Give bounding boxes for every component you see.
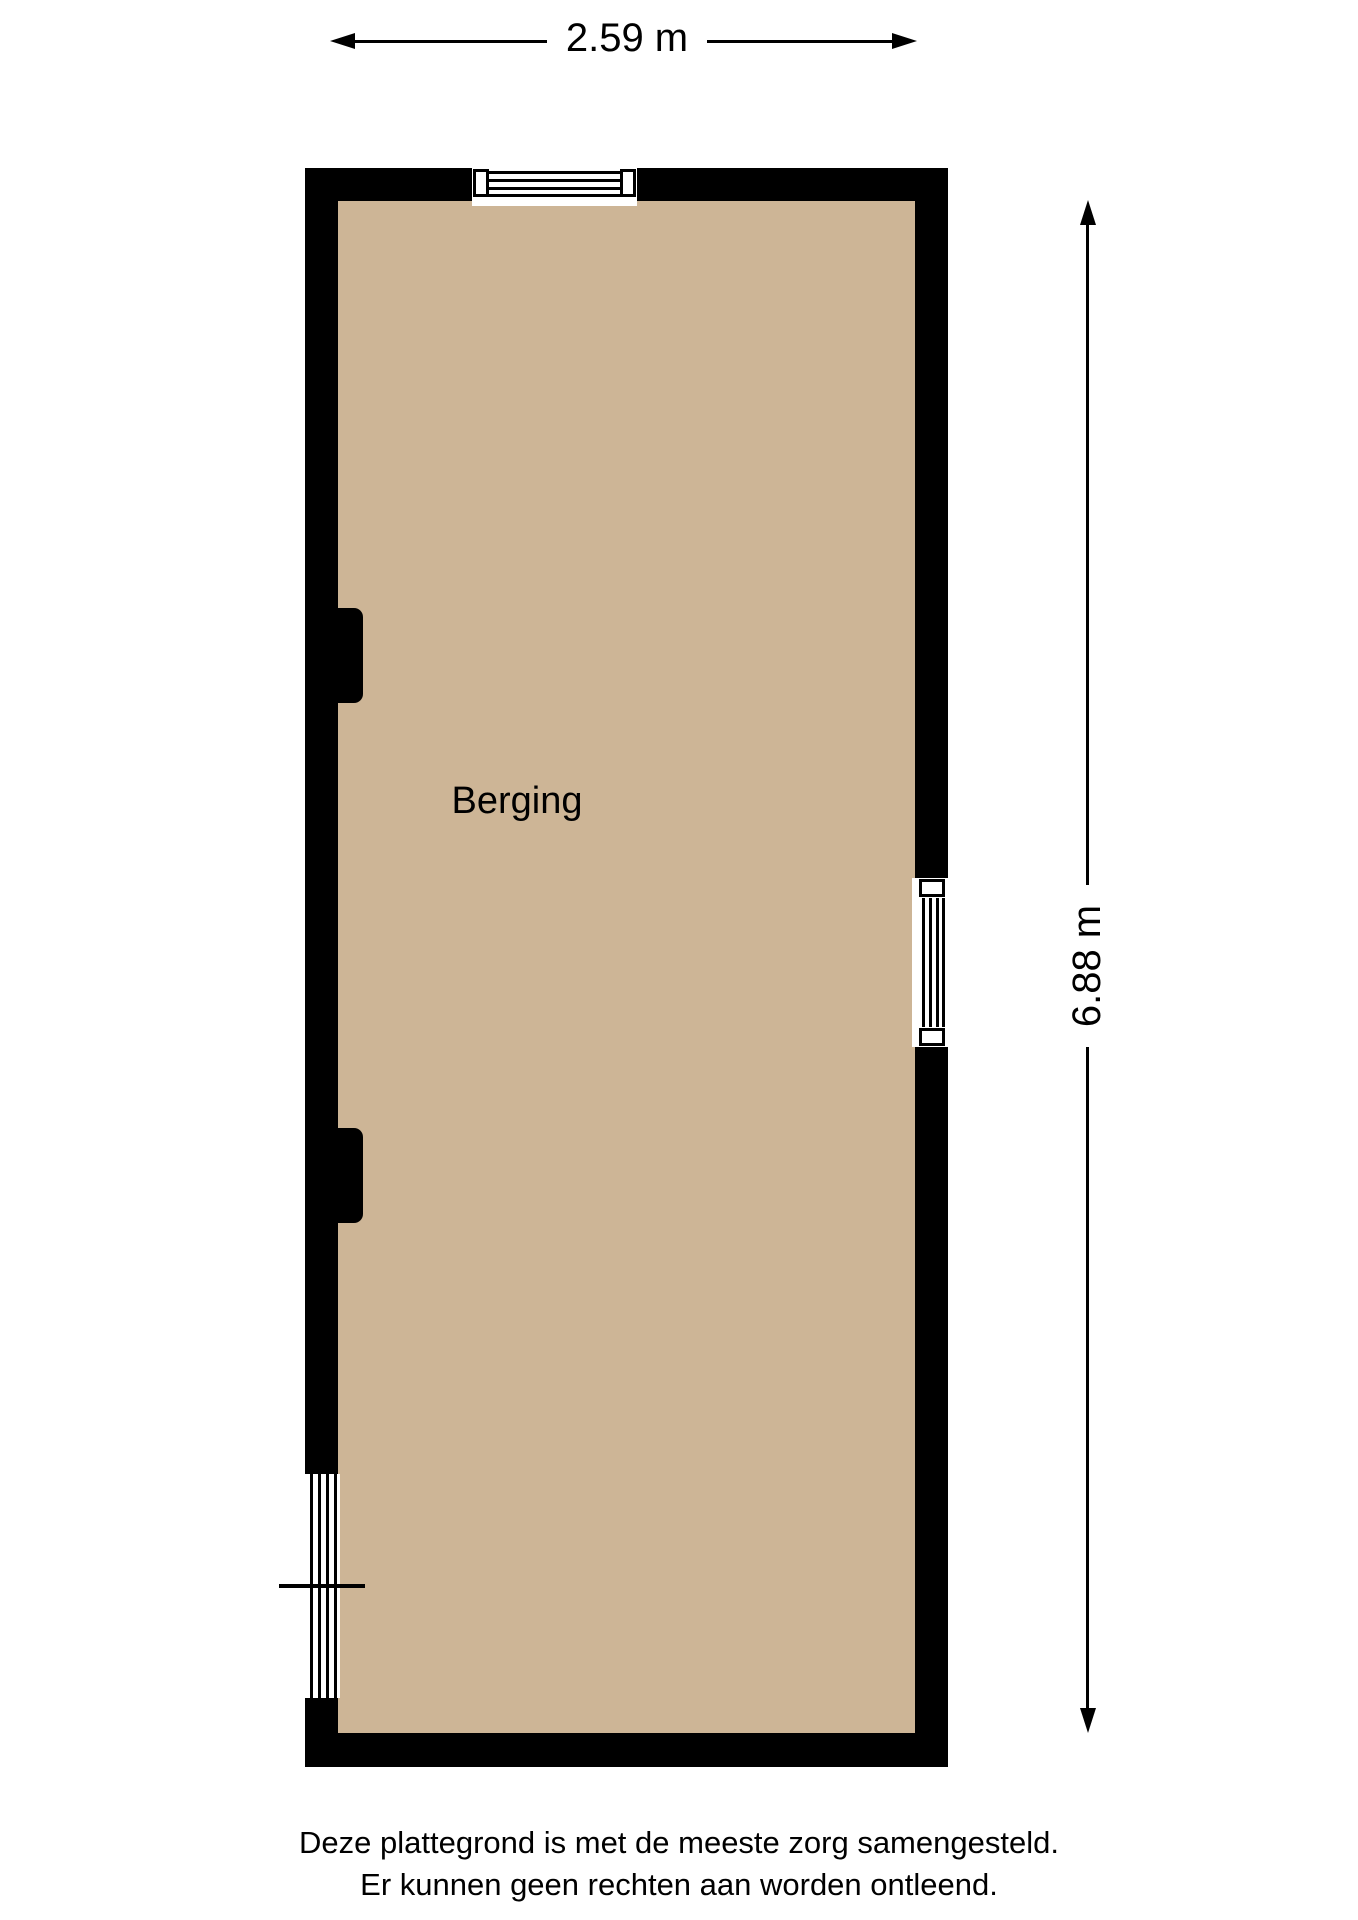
window-pane-line xyxy=(488,187,621,190)
dimension-line xyxy=(1086,1047,1089,1710)
wall-protrusion-lower xyxy=(338,1128,363,1223)
wall-protrusion-upper xyxy=(338,608,363,703)
arrowhead-up-icon xyxy=(1080,200,1096,225)
window-pane-line xyxy=(929,898,932,1027)
window-cap xyxy=(620,169,636,197)
window-pane-line xyxy=(488,171,621,174)
disclaimer-line-1: Deze plattegrond is met de meeste zorg s… xyxy=(0,1822,1358,1864)
window-cap xyxy=(473,169,489,197)
window-pane-line xyxy=(488,179,621,182)
disclaimer: Deze plattegrond is met de meeste zorg s… xyxy=(0,1822,1358,1906)
dimension-line xyxy=(1086,223,1089,885)
room-floor xyxy=(338,201,915,1733)
disclaimer-line-2: Er kunnen geen rechten aan worden ontlee… xyxy=(0,1864,1358,1906)
arrowhead-down-icon xyxy=(1080,1708,1096,1733)
room-label: Berging xyxy=(397,780,637,822)
window-pane-line xyxy=(936,898,939,1027)
arrowhead-right-icon xyxy=(892,33,917,49)
dimension-line xyxy=(707,40,894,43)
window-pane-line xyxy=(942,898,945,1027)
window-right xyxy=(912,878,948,1047)
dimension-line xyxy=(352,40,547,43)
window-pane-line xyxy=(922,898,925,1027)
dimension-label-width: 2.59 m xyxy=(547,17,707,59)
door-marker-line xyxy=(279,1584,365,1588)
window-top xyxy=(472,168,637,206)
floorplan-canvas: 2.59 m 6.88 m xyxy=(0,0,1358,1920)
window-cap xyxy=(919,1028,945,1046)
window-cap xyxy=(919,879,945,897)
window-pane-line xyxy=(488,194,621,197)
dimension-label-height: 6.88 m xyxy=(1066,886,1108,1046)
